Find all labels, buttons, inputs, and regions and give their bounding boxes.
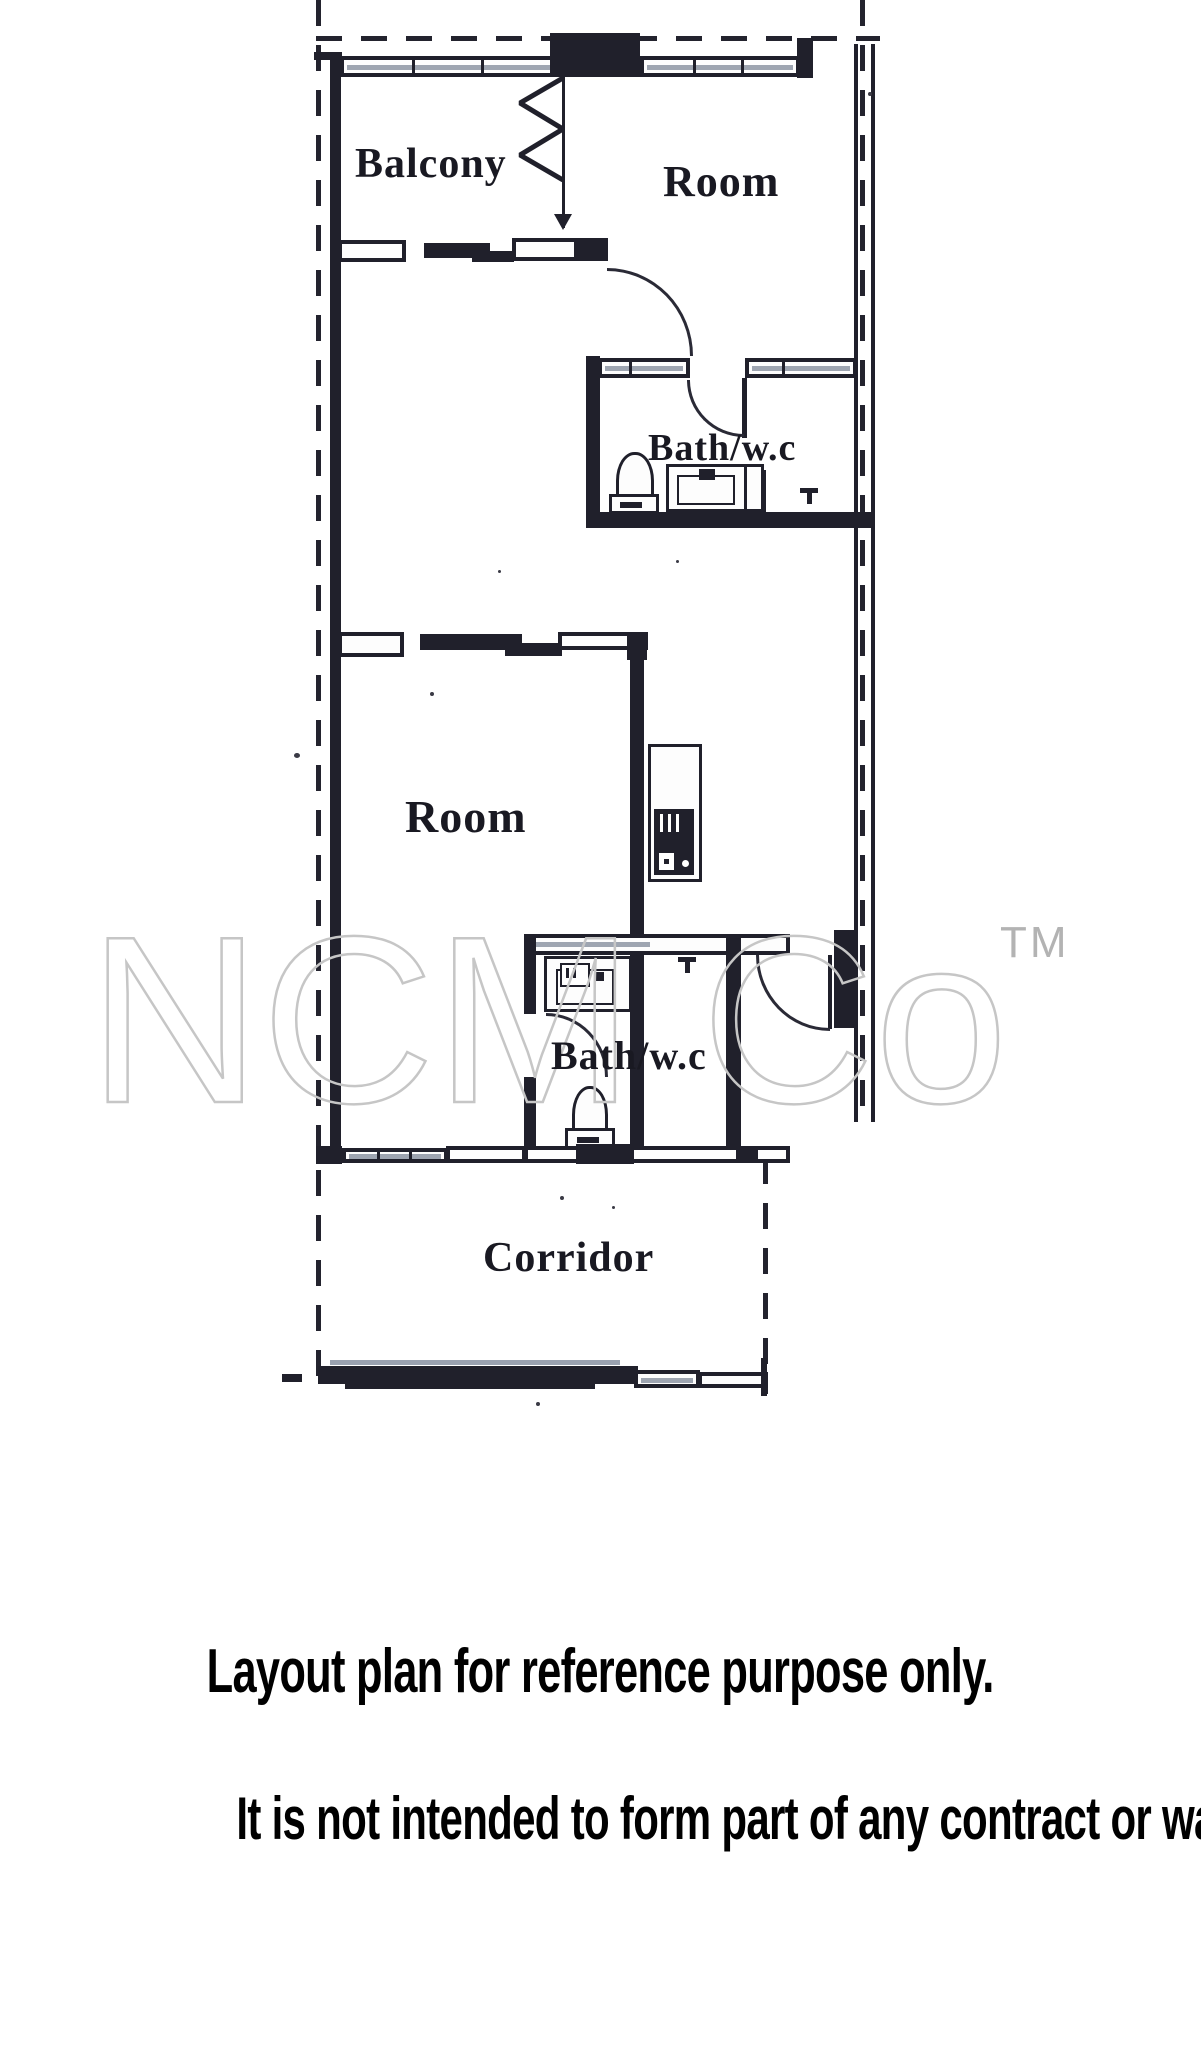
bottom-wall-end-block: [736, 1146, 758, 1163]
scan-speck: [560, 1196, 564, 1200]
trademark-symbol: TM: [1000, 918, 1070, 968]
window-sill: [347, 65, 555, 70]
corridor-bottom-shadow: [330, 1360, 620, 1365]
scan-speck: [676, 560, 679, 563]
floor-drain-icon-upper: [800, 487, 818, 505]
scan-speck: [294, 753, 300, 758]
balcony-top-window: [340, 56, 562, 77]
corridor-bottom-open-wall: [698, 1372, 768, 1388]
bath-top-wall-window-right: [745, 358, 857, 378]
boundary-dash-left: [316, 0, 321, 1392]
folding-window-zigzag-icon: [516, 76, 566, 184]
disclaimer-line-2: It is not intended to form part of any c…: [0, 1784, 1201, 1853]
corridor-bottom-left-tick: [282, 1374, 302, 1382]
mid-room-wall-stub: [338, 632, 404, 657]
kitchenette-unit: [648, 744, 702, 882]
bottom-wall-threshold: [576, 1144, 634, 1164]
watermark: NCM Co: [86, 910, 1026, 1140]
corridor-bottom-window: [634, 1370, 700, 1388]
balcony-bottom-wall-end: [574, 242, 608, 258]
balcony-bottom-heavy-2: [472, 251, 514, 262]
corridor-bottom-heavy-2: [345, 1381, 595, 1389]
bath-top-bottom-wall: [586, 512, 871, 528]
scan-speck: [536, 1402, 540, 1406]
bottom-wall-corner: [316, 1146, 342, 1164]
bath-top-left-wall: [586, 356, 600, 528]
corridor-label: Corridor: [483, 1234, 654, 1282]
bath-top-wall-window-left: [598, 358, 690, 378]
disclaimer-line-1: Layout plan for reference purpose only.: [0, 1636, 1201, 1707]
bottom-wall-mid: [446, 1146, 526, 1163]
bath-wc-label-bottom: Bath/w.c: [551, 1032, 707, 1079]
room-top-window: [640, 56, 800, 77]
balcony-label: Balcony: [355, 140, 507, 188]
divider-end-arrow-icon: [554, 214, 572, 230]
top-right-column: [797, 38, 813, 78]
bath-wc-label-top: Bath/w.c: [648, 426, 796, 470]
door-arc-top-room: [607, 268, 693, 356]
corridor-bottom-right-end: [761, 1358, 767, 1396]
scan-speck: [612, 1206, 615, 1209]
stove-icon: [654, 809, 694, 875]
scan-speck: [498, 570, 501, 573]
room-label-middle: Room: [405, 790, 527, 843]
floor-plan-page: NCM Co TM Balcony Room Bath/w.c Room Bat…: [0, 0, 1201, 2048]
bottom-wall-window: [342, 1148, 448, 1163]
scan-speck: [868, 92, 872, 96]
mid-room-wall-heavy-2: [505, 643, 562, 656]
toilet-base-upper: [609, 494, 659, 514]
scan-speck: [430, 692, 434, 696]
sink-icon-upper: [666, 464, 764, 512]
top-pier: [550, 33, 640, 77]
room-label-top: Room: [663, 156, 779, 207]
svg-text:NCM Co: NCM Co: [88, 910, 1008, 1140]
wall-left-corner-tick: [314, 52, 342, 60]
balcony-bottom-wall-left: [338, 240, 406, 262]
